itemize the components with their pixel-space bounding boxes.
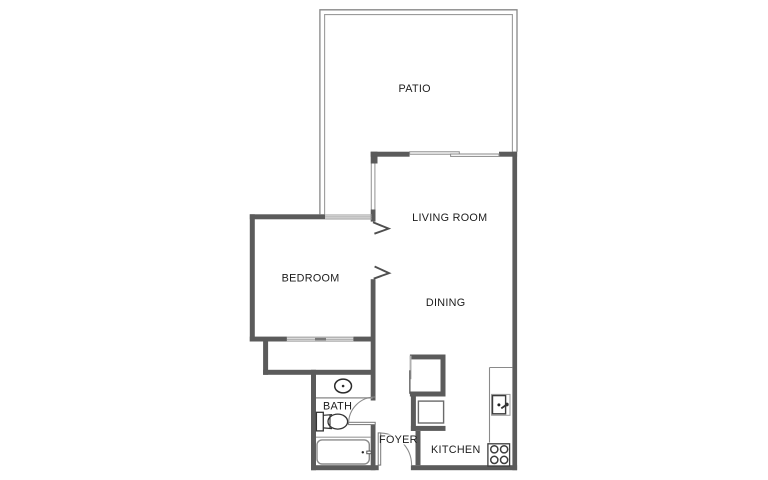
svg-text:KITCHEN: KITCHEN — [431, 444, 481, 456]
svg-text:PATIO: PATIO — [399, 83, 431, 95]
svg-text:BEDROOM: BEDROOM — [282, 273, 340, 285]
svg-text:LIVING ROOM: LIVING ROOM — [412, 212, 487, 224]
svg-text:FOYER: FOYER — [379, 434, 418, 446]
svg-text:BATH: BATH — [323, 400, 352, 412]
svg-text:DINING: DINING — [426, 297, 466, 309]
